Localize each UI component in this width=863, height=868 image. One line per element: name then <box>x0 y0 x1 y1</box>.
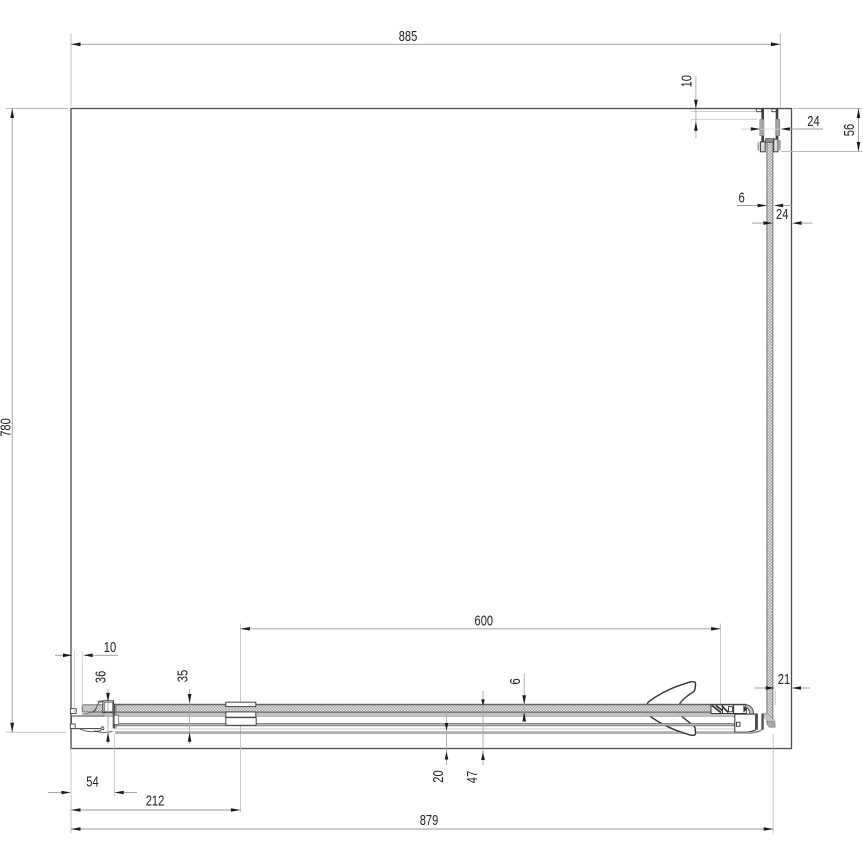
svg-text:212: 212 <box>146 794 165 810</box>
svg-text:24: 24 <box>776 207 788 223</box>
svg-text:879: 879 <box>420 813 439 829</box>
svg-text:36: 36 <box>94 671 110 683</box>
svg-text:24: 24 <box>807 114 819 130</box>
svg-text:10: 10 <box>679 75 695 87</box>
svg-text:54: 54 <box>86 775 98 791</box>
svg-text:47: 47 <box>465 771 481 783</box>
svg-text:20: 20 <box>431 770 447 782</box>
svg-text:35: 35 <box>175 670 191 682</box>
svg-text:6: 6 <box>738 191 744 207</box>
svg-text:885: 885 <box>399 29 418 45</box>
svg-text:10: 10 <box>104 640 116 656</box>
svg-text:6: 6 <box>508 678 524 684</box>
svg-text:600: 600 <box>475 614 494 630</box>
svg-text:780: 780 <box>0 418 15 437</box>
svg-text:56: 56 <box>842 124 858 136</box>
svg-text:21: 21 <box>778 672 790 688</box>
